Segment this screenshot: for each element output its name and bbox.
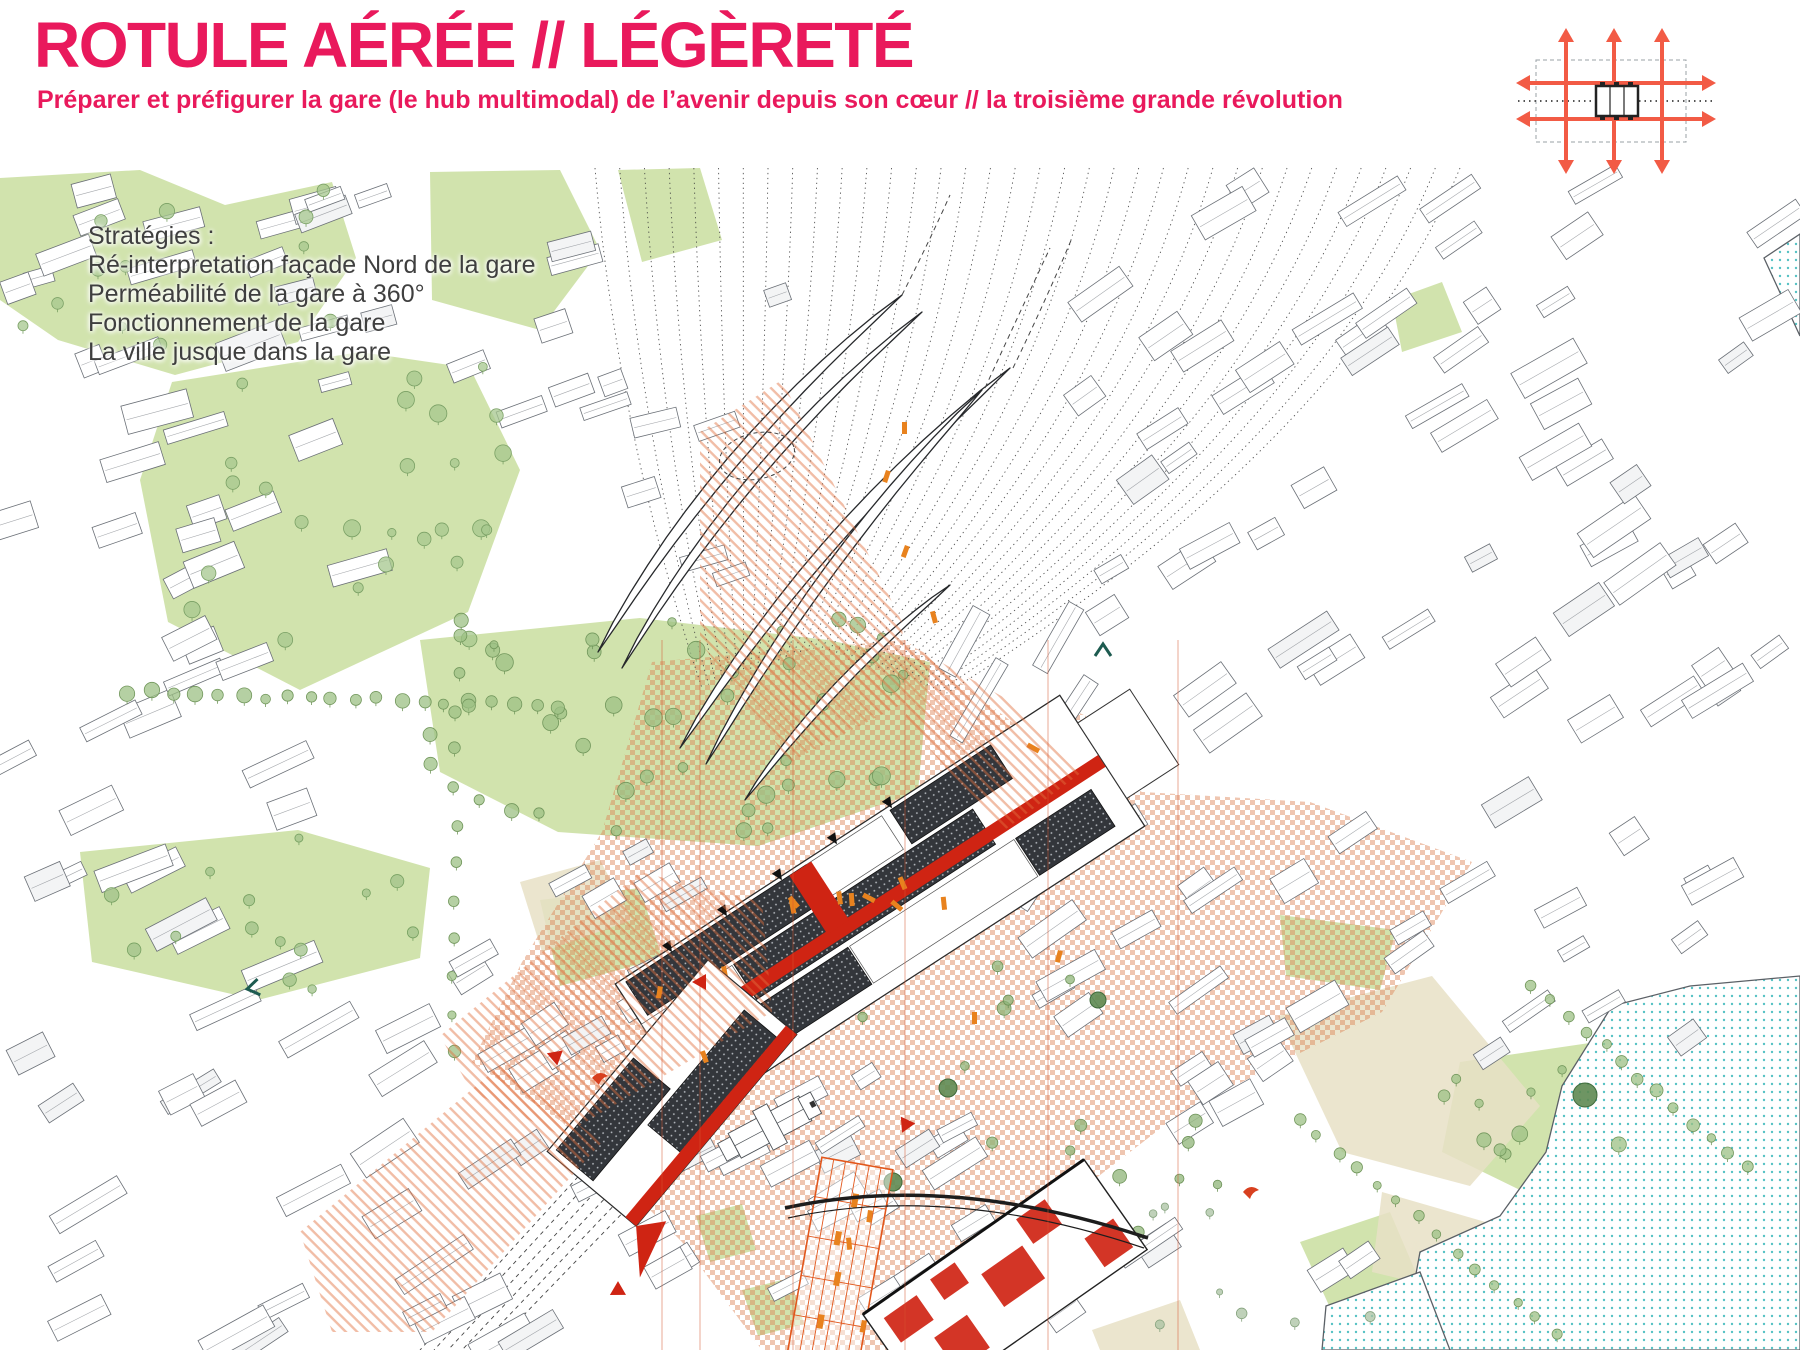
building-block: [1191, 186, 1256, 240]
building-block: [0, 501, 39, 548]
building-block: [49, 1176, 127, 1234]
strategy-item: Perméabilité de la gare à 360°: [88, 280, 536, 309]
building-block: [1068, 266, 1133, 322]
building-block: [1551, 212, 1603, 260]
building-block: [1703, 523, 1748, 564]
building-block: [1137, 408, 1188, 450]
building-block: [1751, 635, 1789, 669]
station-footprint: [1596, 82, 1638, 120]
building-block: [548, 373, 594, 407]
building-block: [1094, 555, 1129, 584]
building-block: [1719, 342, 1754, 373]
building-block: [1609, 817, 1649, 856]
axonometric-city-map: [0, 0, 1800, 1350]
building-block: [1739, 289, 1800, 341]
building-block: [0, 740, 36, 775]
building-block: [48, 1294, 111, 1341]
presentation-board: ROTULE AÉRÉE // LÉGÈRETÉ Préparer et pré…: [0, 0, 1800, 1350]
building-block: [1248, 517, 1285, 549]
building-block: [6, 1032, 55, 1075]
building-block: [1420, 174, 1481, 223]
building-block: [24, 861, 70, 901]
building-block: [1671, 921, 1707, 954]
strategy-item: La ville jusque dans la gare: [88, 338, 536, 367]
building-block: [1464, 544, 1497, 572]
building-block: [1382, 609, 1435, 649]
strategy-item: Fonctionnement de la gare: [88, 309, 536, 338]
building-block: [1435, 221, 1482, 259]
strategies-heading: Stratégies :: [88, 222, 536, 251]
building-block: [59, 785, 124, 835]
building-block: [1033, 601, 1084, 673]
building-block: [630, 407, 681, 438]
building-block: [1553, 582, 1614, 636]
building-block: [1681, 857, 1743, 905]
building-block: [1463, 287, 1501, 324]
building-block: [1161, 442, 1197, 473]
building-block: [279, 1001, 359, 1058]
building-block: [1536, 286, 1575, 317]
page-subtitle: Préparer et préfigurer la gare (le hub m…: [37, 86, 1343, 115]
building-block: [369, 1041, 438, 1097]
building-block: [242, 741, 314, 788]
strategy-item: Ré-interpretation façade Nord de la gare: [88, 251, 536, 280]
building-block: [1568, 695, 1624, 743]
building-block: [496, 395, 547, 427]
building-block: [1064, 375, 1106, 415]
building-block: [354, 184, 391, 209]
multimodal-flows-icon: [1510, 26, 1724, 176]
building-block: [38, 1083, 84, 1123]
building-block: [1291, 467, 1337, 509]
building-block: [1534, 887, 1586, 928]
building-block: [1338, 176, 1406, 227]
building-block: [1085, 594, 1128, 635]
building-block: [48, 1240, 104, 1282]
strategies-list: Stratégies : Ré-interpretation façade No…: [88, 222, 536, 367]
building-block: [1557, 936, 1589, 962]
building-block: [764, 283, 792, 308]
page-title: ROTULE AÉRÉE // LÉGÈRETÉ: [34, 12, 913, 79]
building-block: [92, 513, 142, 549]
building-block: [621, 476, 661, 507]
building-block: [1481, 777, 1542, 828]
building-block: [267, 788, 317, 830]
building-block: [1610, 465, 1651, 504]
building-block: [376, 1004, 441, 1054]
